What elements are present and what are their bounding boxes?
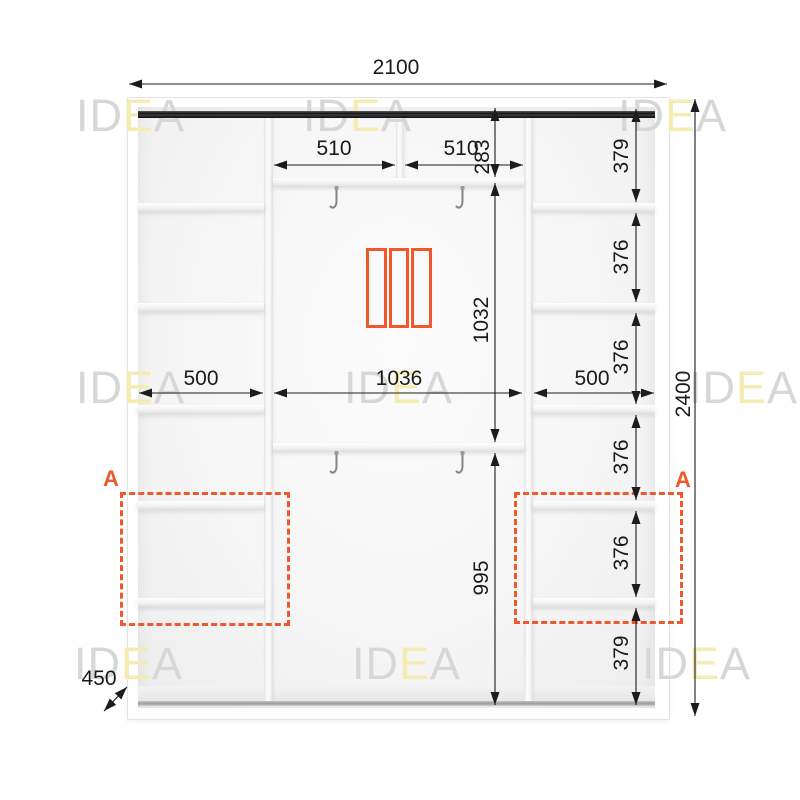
dim-right-col-3: 376 [611,317,633,397]
dim-right-col-5: 376 [611,513,633,593]
dim-overall-height: 2400 [673,354,695,434]
dim-left-shelf-width: 500 [161,368,241,390]
dim-right-col-2: 376 [611,217,633,297]
dim-top-left-compartment: 510 [294,138,374,160]
dim-right-col-4: 376 [611,417,633,497]
dim-middle-section-height: 1032 [471,280,493,360]
dim-right-col-6: 379 [611,613,633,693]
dim-center-width: 1036 [359,368,439,390]
dim-right-col-1: 379 [611,116,633,196]
dim-overall-width: 2100 [356,57,436,79]
dim-bottom-section-height: 995 [471,538,493,618]
wardrobe-technical-drawing: IDEA IDEA IDEA IDEA IDEA IDEA IDEA IDEA … [0,0,800,800]
dim-top-section-height: 283 [472,117,494,197]
dim-depth: 450 [59,668,139,690]
